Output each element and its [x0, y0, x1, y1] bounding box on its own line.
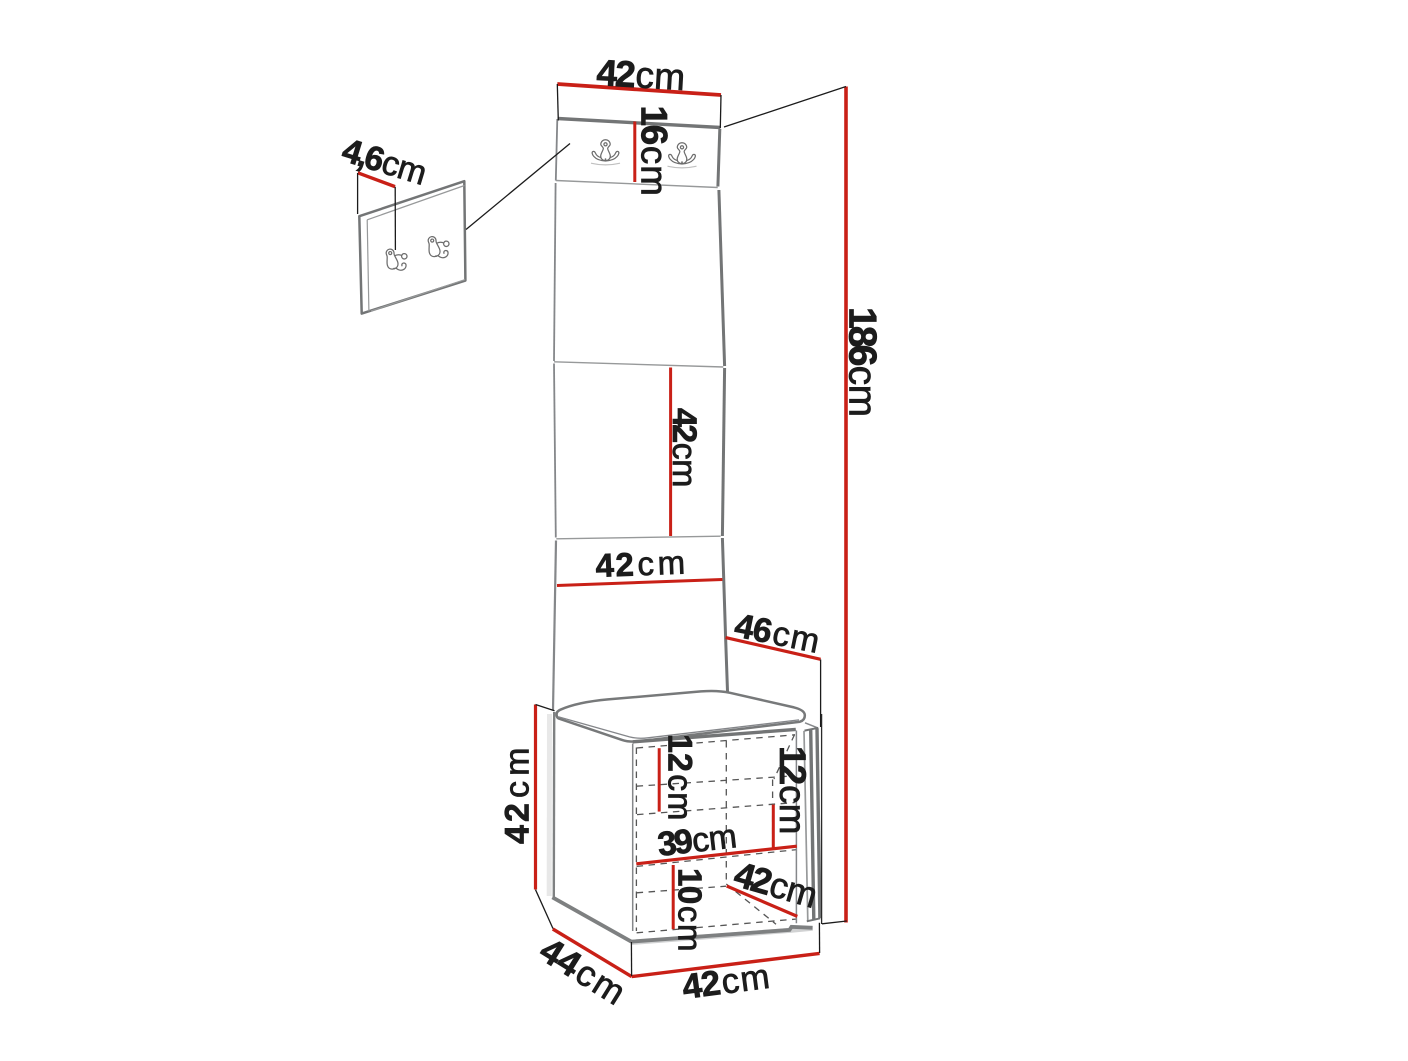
svg-text:16cm: 16cm	[633, 106, 674, 196]
svg-text:42cm: 42cm	[595, 544, 685, 584]
svg-text:42cm: 42cm	[596, 52, 686, 98]
svg-text:42cm: 42cm	[498, 748, 536, 844]
svg-text:186cm: 186cm	[841, 307, 884, 417]
svg-text:12cm: 12cm	[661, 734, 699, 820]
svg-text:42cm: 42cm	[665, 408, 703, 487]
svg-text:12cm: 12cm	[772, 746, 813, 834]
svg-text:10cm: 10cm	[672, 868, 709, 951]
